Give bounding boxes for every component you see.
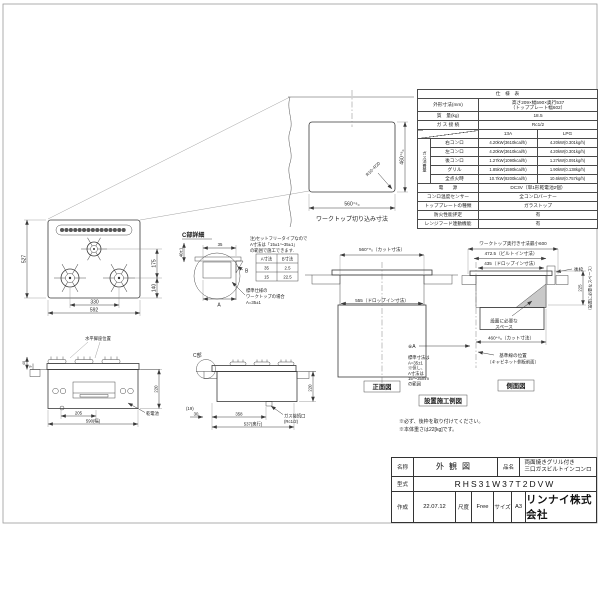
level-label: 水平脚座位置: [85, 335, 111, 342]
power-label: 電 源: [418, 184, 479, 193]
drawing-name: 外観図: [414, 458, 498, 476]
cutout-view: 560⁺⁸₀ 460⁺⁸₀ R10~R20 ワークトップ切り込み寸法: [288, 90, 414, 227]
product-name: 両面焼きグリル付き 三口ガスビルトインコンロ: [520, 458, 596, 476]
rear-frame-label: 後枠: [574, 266, 584, 273]
side-elevation: C部 220 (19) 30 358 537(奥行) ガス接続口 (Rc1/2): [186, 352, 316, 430]
detail-std-1: 標準仕様の: [246, 287, 267, 294]
size-label: サイズ: [494, 492, 512, 522]
install-std-6: の範囲: [408, 381, 421, 388]
detail-c: C部詳細 35 40±1 B A 注)セットフリータイプなので A寸法は「15±…: [179, 231, 308, 309]
size-value: A3: [512, 492, 526, 522]
plan-view: 527 175 140 330 592: [22, 98, 310, 317]
plan-dim-592: 592: [90, 308, 99, 314]
install-note-1: ※必ず、後枠を取り付けてください。: [399, 418, 484, 425]
sv-dim-19: (19): [186, 406, 194, 411]
plate-label: トッププレートの種類: [418, 202, 479, 211]
side-dim-225: 225: [578, 284, 583, 292]
space-label-1: 設置に必要な: [490, 318, 518, 325]
cutout-radius-note: R10~R20: [365, 160, 382, 177]
model-number: RHS31W37T2DVW: [414, 477, 596, 491]
title-block: 名称 外観図 品名 両面焼きグリル付き 三口ガスビルトインコンロ 型式 RHS3…: [391, 457, 597, 523]
space-label-2: スペース: [495, 325, 513, 330]
scale-label: 尺度: [456, 492, 472, 522]
detail-std-2: ワークトップの場合: [246, 293, 285, 300]
fv-dim-220: 220: [154, 385, 159, 393]
install-notes: ※A 標準寸法は A=35±1 ※但し、 A寸法は 15〜35mm の範囲 設置…: [399, 344, 484, 433]
left-knob-1: [53, 388, 59, 394]
fv-dim-9: 9: [29, 365, 33, 367]
burner-row-13a: 10.7kW(9200kcal/h): [479, 175, 538, 184]
spec-mass-value: 18.5: [479, 112, 598, 121]
side-section-caption: 側面図: [506, 381, 526, 390]
counter-section-hatch: [203, 262, 231, 278]
front-section: 560⁺⁸₀（カット寸法） 555（ドロップイン寸法） 正面図: [305, 246, 458, 392]
consumption-label: ガス消費量: [418, 139, 431, 184]
install-std-2: A=35±1: [408, 360, 424, 365]
ab-r2a: 15: [264, 275, 269, 280]
gas-type-diagonal-cell: [418, 130, 479, 139]
spec-conn-value: Rc1/2: [479, 121, 598, 130]
required-space-area: [516, 284, 546, 308]
side-dim-cut: 460⁺⁸₀（カット寸法）: [488, 335, 534, 342]
burner-row-13a: 1.27kW(1090kcal/h): [479, 157, 538, 166]
ab-header-b: B寸法: [282, 256, 294, 263]
install-caption: 設置施工例図: [424, 396, 462, 405]
side-dim-builtin: 472.5（ビルトイン寸法）: [485, 250, 538, 257]
front-section-caption: 正面図: [373, 382, 392, 391]
drawing-sheet: 527 175 140 330 592 560⁺⁸₀ 460⁺⁸₀ R10~R2…: [0, 0, 600, 600]
burner-row-lpg: 1.27kW(0.091kg/h): [538, 157, 598, 166]
hood-label: レンジフード連動機能: [418, 220, 479, 229]
burner-profiles: [48, 357, 120, 364]
plate-value: ガラストップ: [479, 202, 598, 211]
base-label-2: （キャビネット側板前面）: [487, 359, 539, 366]
c-marker-circle: [197, 360, 216, 379]
detail-dim-left: 40±1: [179, 247, 184, 257]
ab-r1b: 2.5: [285, 266, 292, 271]
name-label: 名称: [392, 458, 414, 476]
spec-table: 仕 様 表 外形寸法(mm) 高さ209×幅590×奥行537（トッププレート幅…: [417, 89, 598, 229]
power-value: DC3V（単1形乾電池2個）: [479, 184, 598, 193]
product-line-2: 三口ガスビルトインコンロ: [524, 467, 591, 473]
detail-note-2: A寸法は「15±1〜35±1」: [250, 241, 298, 248]
burner-row-lpg: 4.20kW(0.301kg/h): [538, 139, 598, 148]
fv-dim-40: 40: [22, 361, 26, 365]
model-label: 型式: [392, 477, 414, 491]
spec-title: 仕 様 表: [418, 90, 598, 99]
sv-dim-358: 358: [235, 412, 243, 417]
plan-dim-527: 527: [22, 255, 28, 264]
sensor-value: 全コンロバーナー: [479, 193, 598, 202]
spec-mass-label: 質 量(kg): [418, 112, 479, 121]
gas-connector: [266, 402, 272, 407]
burner-row-13a: 1.85kW(1590kcal/h): [479, 166, 538, 175]
product-line-1: 両面焼きグリル付き: [524, 460, 574, 466]
install-std-3: ※但し、: [408, 365, 425, 371]
fireproof-label: 防火性能評定: [418, 211, 479, 220]
plan-dim-330: 330: [90, 300, 99, 306]
break-line: [289, 97, 291, 227]
spec-dims-value: 高さ209×幅590×奥行537（トッププレート幅602）: [479, 99, 598, 112]
company-name: リンナイ株式会社: [526, 492, 596, 522]
detail-std-3: A=35±1: [246, 300, 262, 305]
left-knob-2: [60, 388, 66, 394]
burner-row-lpg: 4.20kW(0.301kg/h): [538, 148, 598, 157]
sv-dim-30: 30: [194, 412, 199, 417]
side-dim-min600: ワークトップ奥行き寸法最小600: [479, 240, 547, 247]
gas-port-label-2: (Rc1/2): [284, 419, 299, 424]
burner-row-13a: 4.20kW(3610kcal/h): [479, 139, 538, 148]
base-label-1: 基準線の位置: [499, 352, 527, 359]
side-dim-drop: 435（ドロップイン寸法）: [484, 260, 538, 267]
left-burner: [54, 264, 86, 292]
burner-row-13a: 4.20kW(3610kcal/h): [479, 148, 538, 157]
battery-label: 乾電池: [146, 410, 160, 417]
front-dim-cut: 560⁺⁸₀（カット寸法）: [359, 246, 405, 253]
ab-header-a: A寸法: [261, 256, 273, 263]
sv-dim-220: 220: [308, 384, 313, 392]
detail-label-a: A: [217, 303, 221, 309]
right-knob-2: [128, 388, 134, 394]
c-marker-label: C部: [193, 352, 202, 359]
hood-value: 有: [479, 220, 598, 229]
burner-row-label: 全点火時: [431, 175, 479, 184]
burner-row-label: 左コンロ: [431, 148, 479, 157]
spec-conn-label: ガ ス 接 続: [418, 121, 479, 130]
front-elevation: 水平脚座位置 205 590(幅) 220 40 9: [22, 335, 162, 427]
sensor-label: コンロ温度センサー: [418, 193, 479, 202]
cutout-caption: ワークトップ切り込み寸法: [316, 215, 388, 223]
fv-dim-205: 205: [75, 411, 83, 416]
burner-row-lpg: 1.90kW(0.138kg/h): [538, 166, 598, 175]
detail-note-1: 注)セットフリータイプなので: [250, 235, 307, 242]
ref-a-label: ※A: [408, 344, 416, 350]
detail-ab-table: A寸法 B寸法 35 2.5 15 22.5: [256, 254, 298, 281]
date-value: 22.07.12: [414, 492, 456, 522]
plan-dim-140: 140: [152, 284, 158, 293]
detail-dim-35: 35: [218, 242, 223, 247]
right-knob-1: [120, 388, 126, 394]
spec-dims-label: 外形寸法(mm): [418, 99, 479, 112]
side-section: ワークトップ奥行き寸法最小600 472.5（ビルトイン寸法） 435（ドロップ…: [462, 240, 593, 391]
burner-row-label: グリル: [431, 166, 479, 175]
scale-value: Free: [472, 492, 494, 522]
fv-dim-590: 590(幅): [86, 418, 101, 425]
plan-dim-175: 175: [152, 259, 158, 268]
install-note-2: ※本体重さは22[kg]です。: [399, 426, 457, 433]
burner-row-label: 右コンロ: [431, 139, 479, 148]
product-label: 品名: [498, 458, 520, 476]
burner-row-label: 後コンロ: [431, 157, 479, 166]
date-label: 作成: [392, 492, 414, 522]
detail-label-b: B: [245, 269, 249, 275]
sv-dim-537: 537(奥行): [244, 421, 263, 428]
ab-r1a: 35: [264, 266, 269, 271]
cutout-dim-height: 460⁺⁸₀: [400, 149, 406, 164]
install-std-5: 15〜35mm: [408, 376, 429, 381]
burner-row-lpg: 10.6kW(0.757kg/h): [538, 175, 598, 184]
detail-note-3: の範囲で施工できます.: [250, 247, 294, 254]
detail-c-title: C部詳細: [182, 231, 204, 239]
col-13a: 13A: [479, 130, 538, 139]
grill-door: [73, 382, 115, 398]
cutout-dim-width: 560⁺⁸₀: [344, 202, 359, 208]
fireproof-value: 有: [479, 211, 598, 220]
col-lpg: LPG: [538, 130, 598, 139]
ab-r2b: 22.5: [283, 275, 292, 280]
side-space-note-rot: （設置に必要なスペース）: [587, 264, 593, 313]
